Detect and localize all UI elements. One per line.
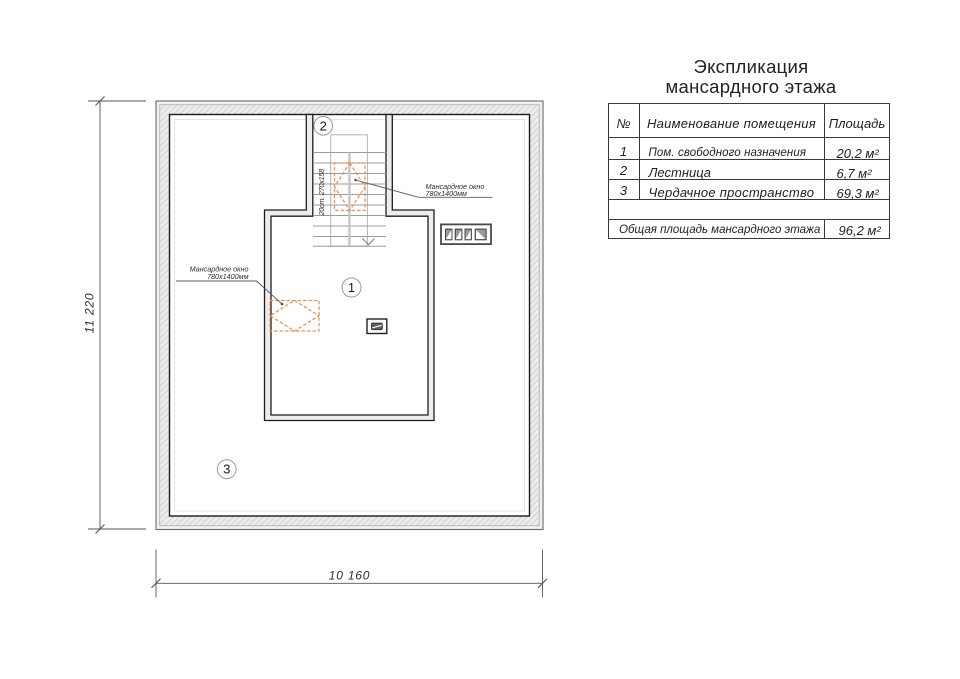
svg-text:780х1400мм: 780х1400мм <box>426 189 468 198</box>
svg-text:3: 3 <box>223 462 230 477</box>
svg-text:20ст. 270х158: 20ст. 270х158 <box>317 168 326 217</box>
svg-text:1: 1 <box>348 280 355 295</box>
svg-text:2: 2 <box>320 118 327 133</box>
svg-text:10 160: 10 160 <box>329 569 371 583</box>
svg-text:780х1400мм: 780х1400мм <box>207 272 249 281</box>
svg-text:11 220: 11 220 <box>83 293 97 334</box>
